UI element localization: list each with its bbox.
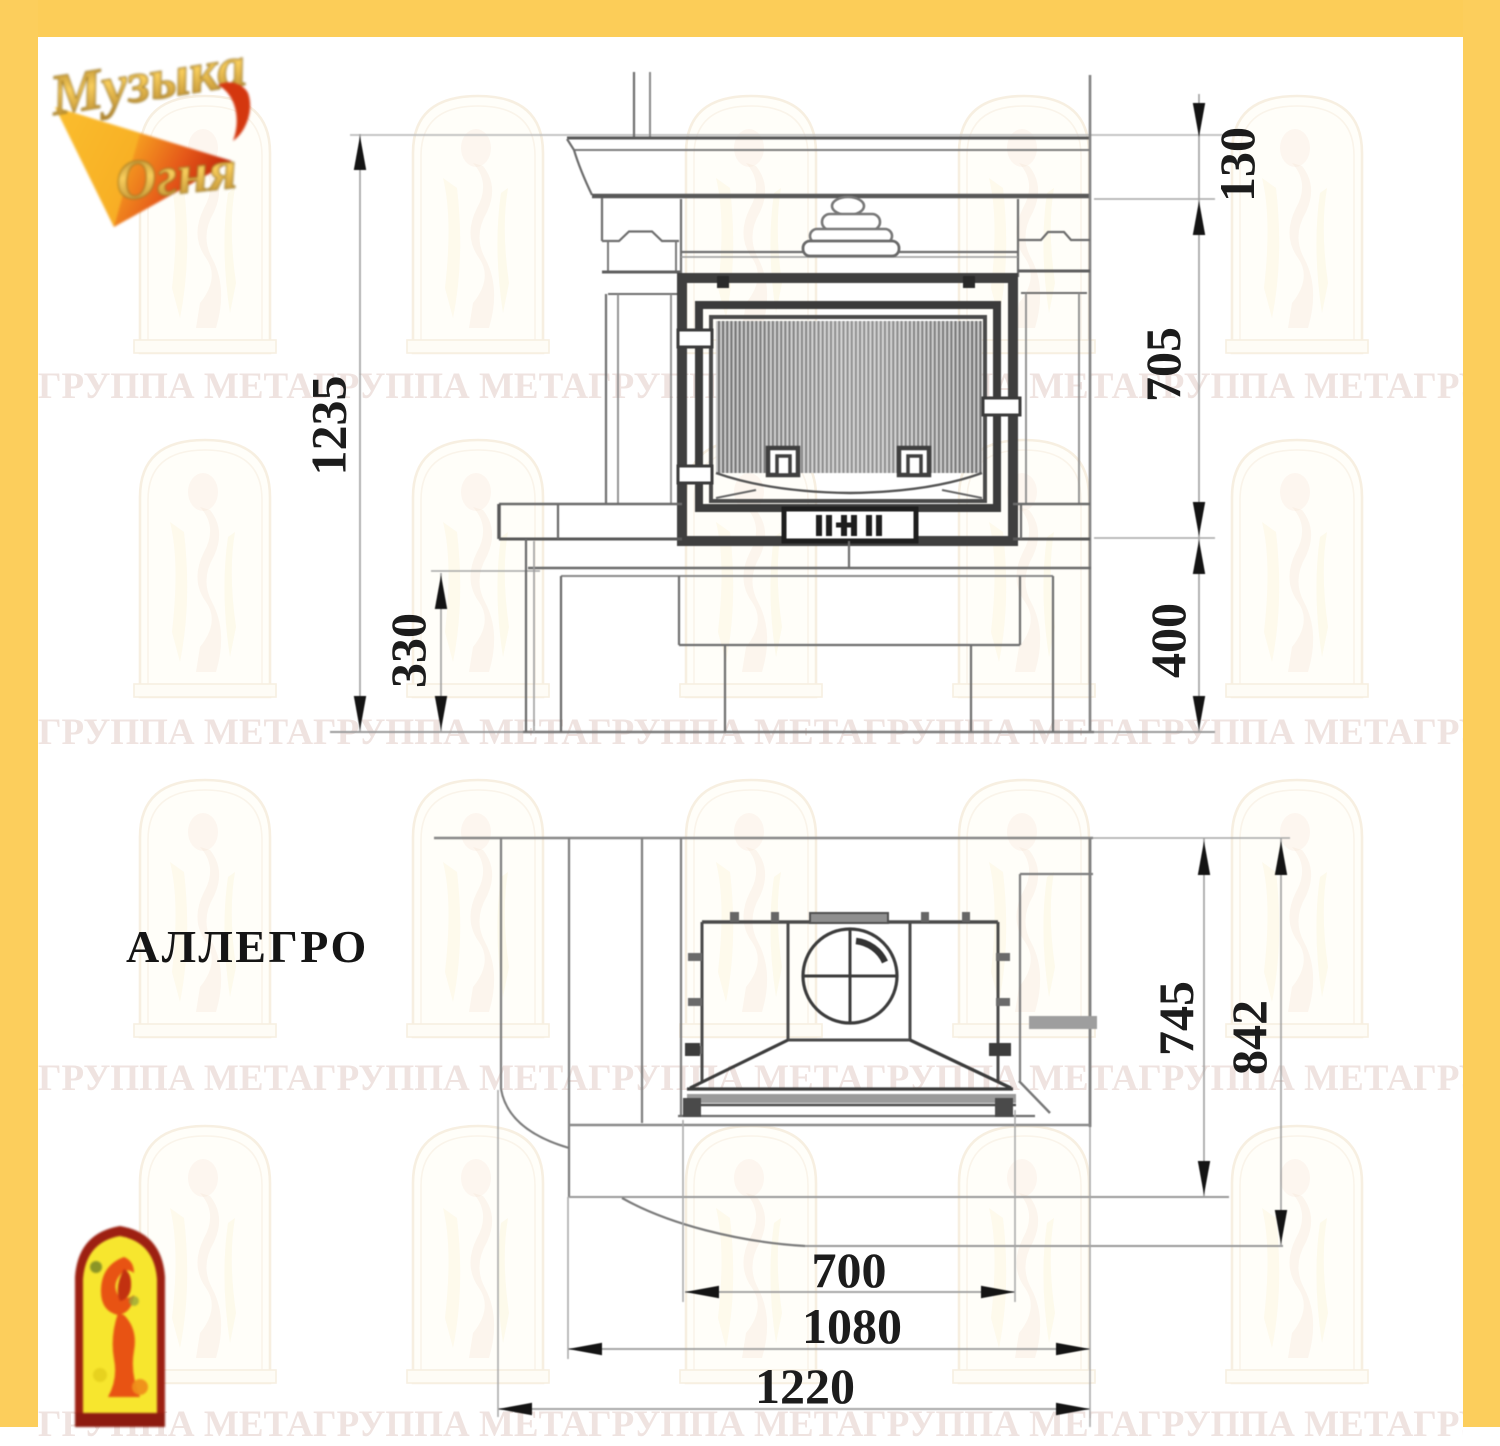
svg-text:Огня: Огня: [113, 139, 240, 213]
svg-text:Музыка: Музыка: [45, 33, 250, 128]
